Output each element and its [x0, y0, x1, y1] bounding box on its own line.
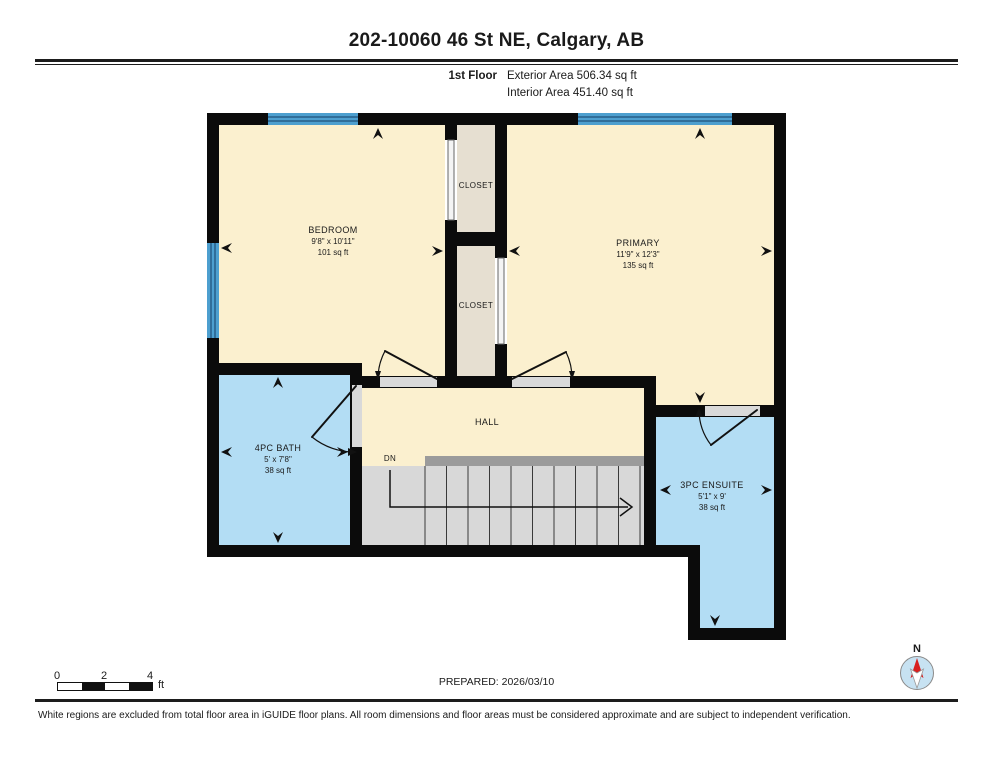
- stairs-floor: [362, 466, 644, 545]
- compass: N: [893, 640, 941, 694]
- interior-area-text: Interior Area 451.40 sq ft: [507, 87, 633, 99]
- prepared-date: PREPARED: 2026/03/10: [0, 676, 993, 688]
- primary-dims: 11'9" x 12'3": [616, 250, 659, 259]
- exterior-area-text: Exterior Area 506.34 sq ft: [507, 70, 637, 82]
- primary-label: PRIMARY: [616, 238, 660, 248]
- page-title: 202-10060 46 St NE, Calgary, AB: [0, 30, 993, 52]
- closet-bottom-label: CLOSET: [459, 301, 493, 310]
- ensuite-label: 3PC ENSUITE: [680, 480, 743, 490]
- bath-door-opening: [352, 385, 362, 447]
- bedroom-label: BEDROOM: [308, 225, 357, 235]
- bath-area: 38 sq ft: [265, 466, 292, 475]
- bedroom-side-window: [207, 243, 219, 338]
- closet-top-floor: [457, 125, 495, 232]
- bedroom-dims: 9'8" x 10'11": [311, 237, 354, 246]
- footer-divider: [35, 699, 958, 702]
- primary-window: [578, 113, 732, 125]
- floor-plan-page: 202-10060 46 St NE, Calgary, AB 1st Floo…: [0, 0, 993, 768]
- floor-plan-drawing: BEDROOM 9'8" x 10'11" 101 sq ft CLOSET C…: [200, 105, 800, 650]
- ensuite-floor: [656, 417, 774, 628]
- closet-top-door: [448, 140, 454, 220]
- primary-door-opening: [512, 377, 570, 387]
- compass-north-label: N: [913, 643, 921, 655]
- closet-bottom-door: [498, 258, 504, 344]
- bath-dims: 5' x 7'8": [264, 455, 292, 464]
- hall-floor: [362, 388, 644, 466]
- ensuite-dims: 5'1" x 9': [698, 492, 726, 501]
- bedroom-window: [268, 113, 358, 125]
- closet-top-label: CLOSET: [459, 181, 493, 190]
- ensuite-area: 38 sq ft: [699, 503, 726, 512]
- floor-label: 1st Floor: [377, 70, 497, 82]
- header-divider: [35, 59, 958, 65]
- hall-label: HALL: [475, 417, 499, 427]
- bath-label: 4PC BATH: [255, 443, 302, 453]
- closet-bottom-floor: [457, 246, 495, 376]
- bedroom-area: 101 sq ft: [318, 248, 349, 257]
- primary-area: 135 sq ft: [623, 261, 654, 270]
- stairs-dn-label: DN: [384, 454, 396, 463]
- disclaimer-text: White regions are excluded from total fl…: [38, 710, 968, 721]
- bedroom-door-opening: [380, 377, 437, 387]
- stair-rail: [425, 456, 644, 466]
